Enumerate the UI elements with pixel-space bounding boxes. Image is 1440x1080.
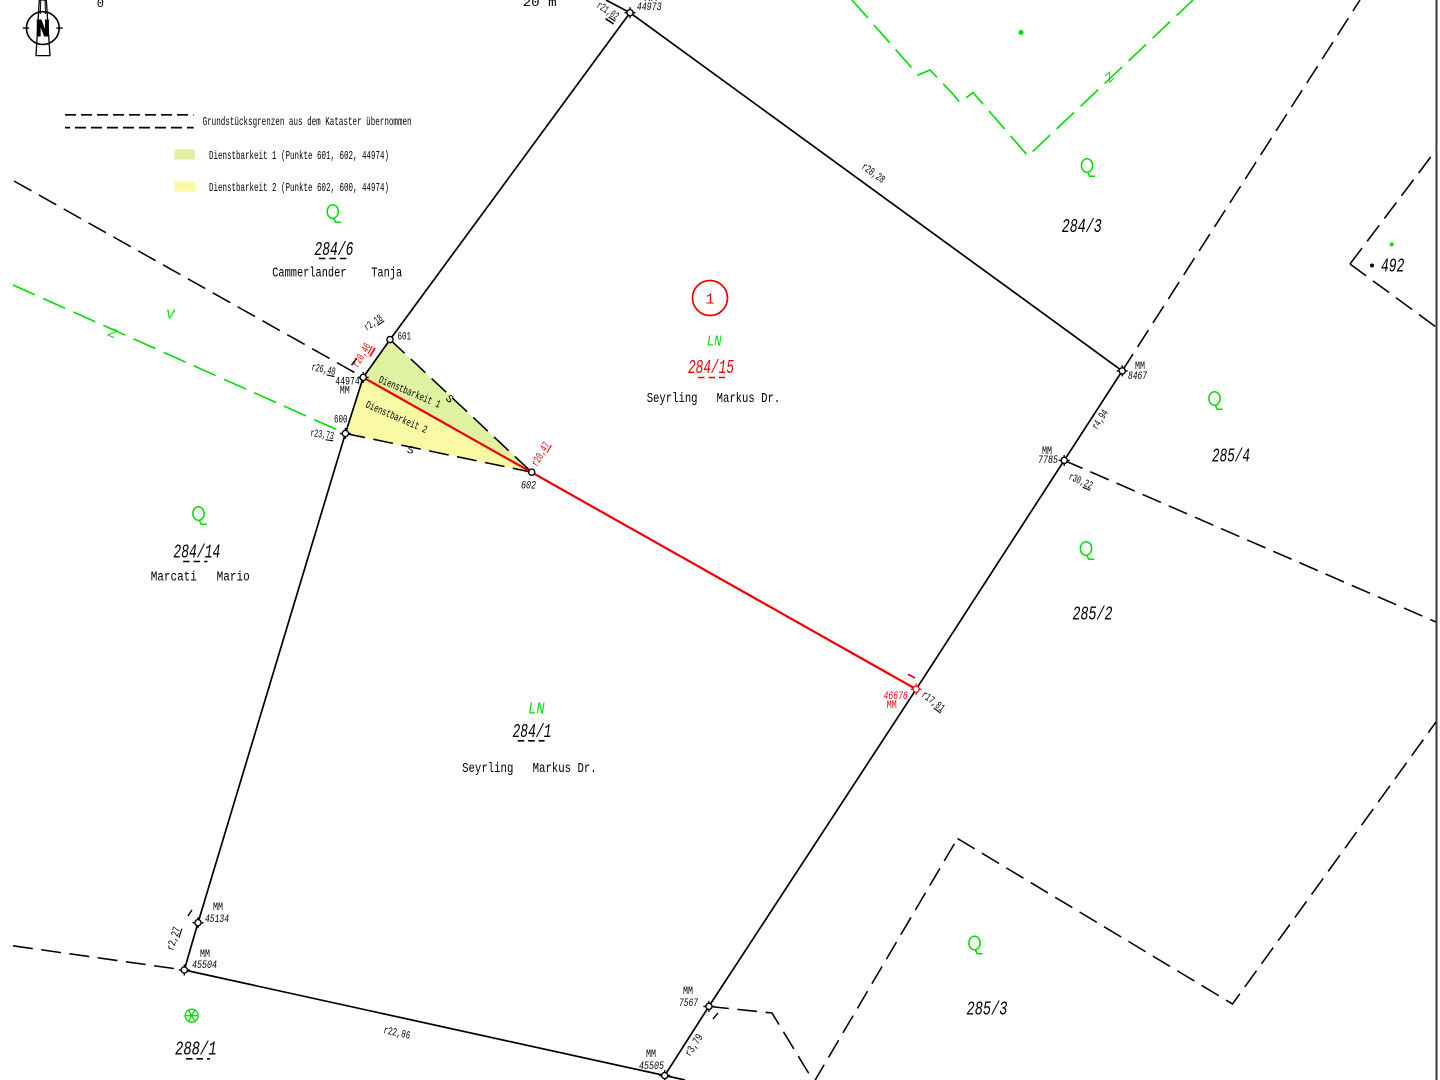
svg-text:285/2: 285/2 [1073,604,1113,626]
svg-text:MM: MM [646,1049,656,1061]
svg-text:Seyrling Markus Dr.: Seyrling Markus Dr. [462,762,597,777]
svg-text:45505: 45505 [639,1061,664,1073]
svg-text:7785: 7785 [1038,455,1058,467]
svg-text:20 m: 20 m [523,0,557,10]
svg-text:600: 600 [334,414,348,426]
svg-text:288/1: 288/1 [175,1039,217,1061]
svg-text:284/1: 284/1 [513,721,552,743]
svg-text:285/3: 285/3 [967,999,1008,1021]
svg-text:Seyrling Markus Dr.: Seyrling Markus Dr. [647,392,781,407]
svg-text:Dienstbarkeit 2 (Punkte 602, 6: Dienstbarkeit 2 (Punkte 602, 600, 44974) [209,181,389,195]
svg-text:45134: 45134 [205,914,229,926]
svg-text:LN: LN [528,701,545,720]
svg-text:N: N [36,17,50,44]
svg-text:7567: 7567 [679,998,698,1010]
svg-text:602: 602 [521,481,536,493]
svg-text:Cammerlander Tanja: Cammerlander Tanja [272,267,402,282]
svg-text:285/4: 285/4 [1212,446,1250,468]
svg-text:MM: MM [340,385,350,397]
svg-text:MM: MM [887,700,897,712]
svg-text:0: 0 [97,0,104,11]
svg-text:LN: LN [707,334,722,351]
svg-text:284/3: 284/3 [1062,216,1102,238]
svg-text:8467: 8467 [1128,371,1147,383]
svg-text:Grundstücksgrenzen aus dem Kat: Grundstücksgrenzen aus dem Kataster über… [203,115,412,129]
svg-text:601: 601 [398,331,412,343]
svg-text:45504: 45504 [192,960,217,972]
svg-text:MM: MM [213,902,223,914]
svg-text:44973: 44973 [637,2,662,14]
svg-text:MM: MM [683,986,693,998]
svg-text:284/14: 284/14 [173,542,220,564]
svg-text:1: 1 [705,292,714,309]
svg-text:Dienstbarkeit 1 (Punkte 601, 6: Dienstbarkeit 1 (Punkte 601, 602, 44974) [209,149,389,163]
svg-text:284/15: 284/15 [688,357,734,379]
svg-text:492: 492 [1381,256,1404,278]
svg-text:Marcati Mario: Marcati Mario [151,571,250,586]
